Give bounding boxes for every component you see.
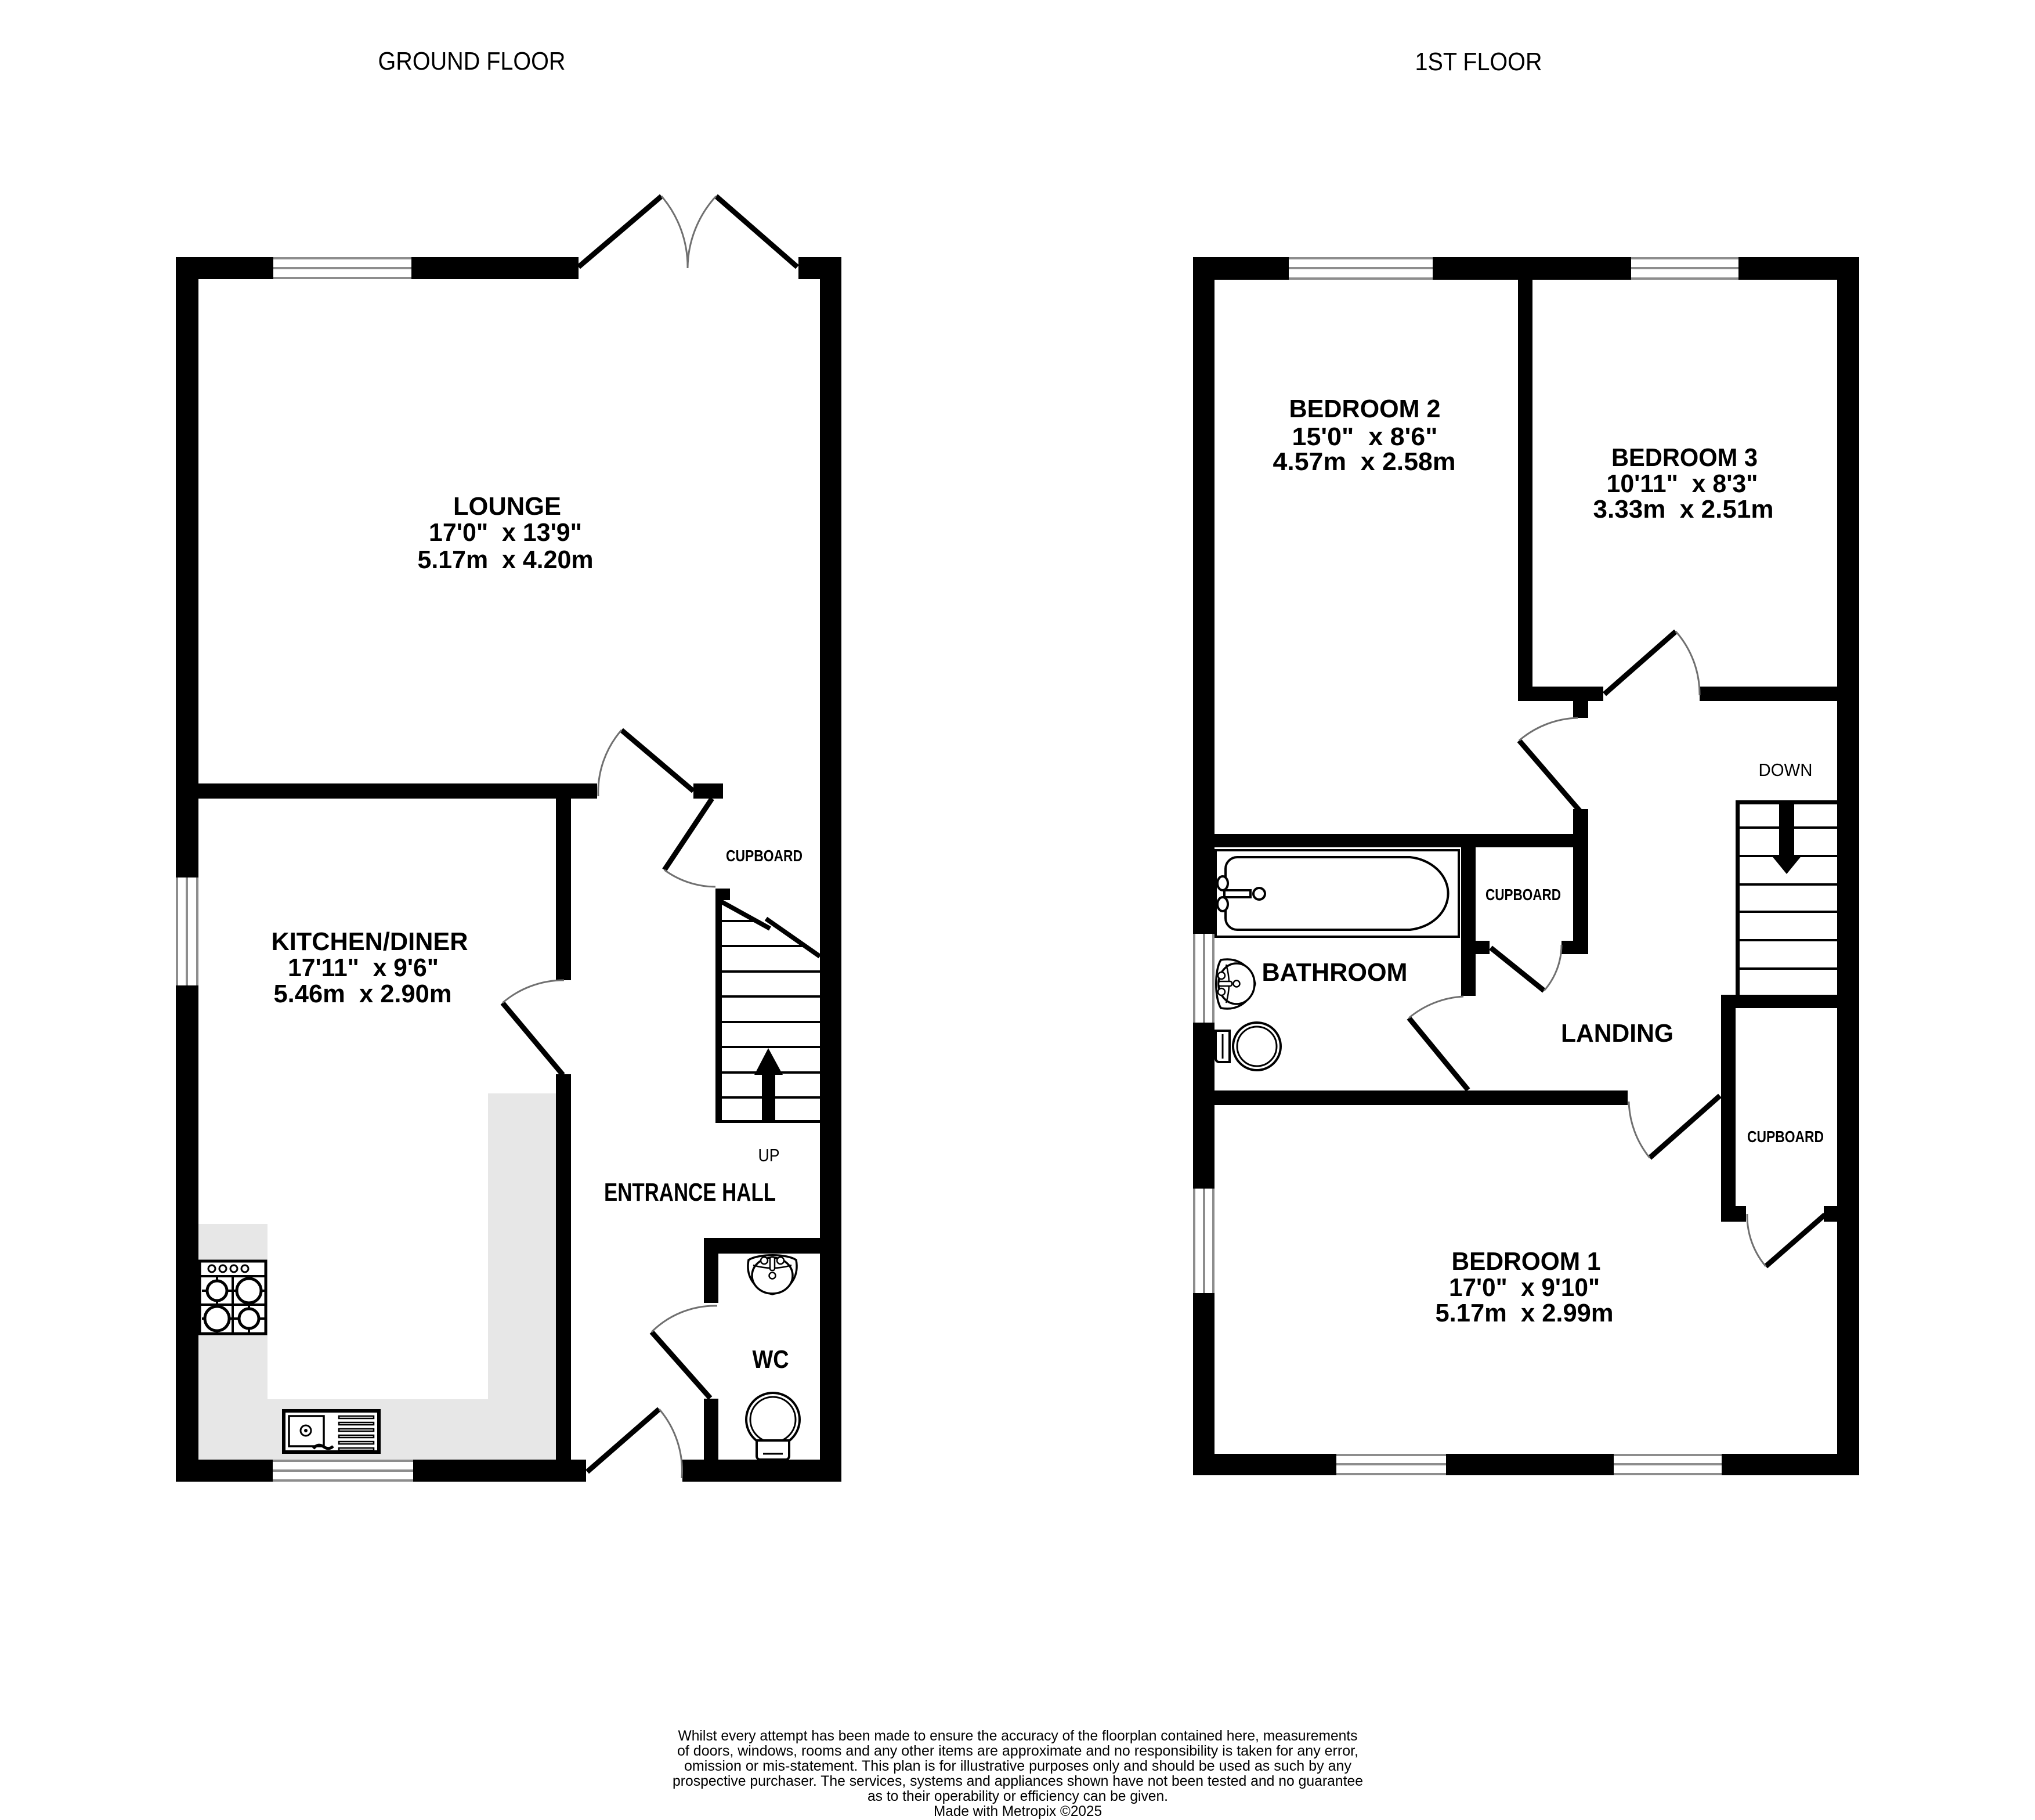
svg-text:4.57m x 2.58m: 4.57m x 2.58m xyxy=(1273,447,1456,476)
svg-text:BEDROOM 2: BEDROOM 2 xyxy=(1289,395,1441,423)
svg-text:Whilst every attempt has been: Whilst every attempt has been made to en… xyxy=(678,1728,1358,1744)
svg-text:UP: UP xyxy=(758,1145,780,1165)
svg-text:BEDROOM 3: BEDROOM 3 xyxy=(1611,443,1758,472)
svg-text:CUPBOARD: CUPBOARD xyxy=(1485,886,1561,904)
svg-text:ENTRANCE HALL: ENTRANCE HALL xyxy=(604,1178,776,1207)
svg-text:3.33m x 2.51m: 3.33m x 2.51m xyxy=(1593,495,1774,523)
svg-text:GROUND FLOOR: GROUND FLOOR xyxy=(378,47,566,75)
svg-text:17'0" x 13'9": 17'0" x 13'9" xyxy=(429,518,582,547)
svg-text:1ST FLOOR: 1ST FLOOR xyxy=(1415,48,1542,76)
svg-text:WC: WC xyxy=(753,1345,789,1374)
svg-text:omission or mis-statement. Thi: omission or mis-statement. This plan is … xyxy=(684,1758,1351,1774)
svg-text:BEDROOM 1: BEDROOM 1 xyxy=(1452,1247,1601,1276)
svg-text:17'11" x 9'6": 17'11" x 9'6" xyxy=(288,954,439,982)
svg-text:LANDING: LANDING xyxy=(1561,1019,1673,1048)
svg-text:KITCHEN/DINER: KITCHEN/DINER xyxy=(272,927,468,956)
svg-text:Made with Metropix ©2025: Made with Metropix ©2025 xyxy=(934,1803,1102,1819)
svg-text:15'0" x 8'6": 15'0" x 8'6" xyxy=(1292,423,1438,451)
svg-text:CUPBOARD: CUPBOARD xyxy=(1747,1128,1824,1146)
svg-text:BATHROOM: BATHROOM xyxy=(1262,958,1408,987)
svg-text:5.17m x 4.20m: 5.17m x 4.20m xyxy=(418,546,594,574)
svg-text:prospective purchaser. The ser: prospective purchaser. The services, sys… xyxy=(673,1773,1363,1789)
svg-text:5.46m x 2.90m: 5.46m x 2.90m xyxy=(274,980,452,1008)
svg-text:LOUNGE: LOUNGE xyxy=(453,492,561,521)
svg-text:10'11" x 8'3": 10'11" x 8'3" xyxy=(1607,470,1758,498)
svg-text:as to their operability or eff: as to their operability or efficiency ca… xyxy=(868,1788,1168,1804)
svg-text:of doors, windows, rooms and a: of doors, windows, rooms and any other i… xyxy=(677,1743,1358,1759)
svg-text:DOWN: DOWN xyxy=(1759,760,1813,780)
svg-text:17'0" x 9'10": 17'0" x 9'10" xyxy=(1449,1273,1600,1302)
svg-text:CUPBOARD: CUPBOARD xyxy=(726,847,803,865)
svg-text:5.17m x 2.99m: 5.17m x 2.99m xyxy=(1436,1299,1614,1327)
